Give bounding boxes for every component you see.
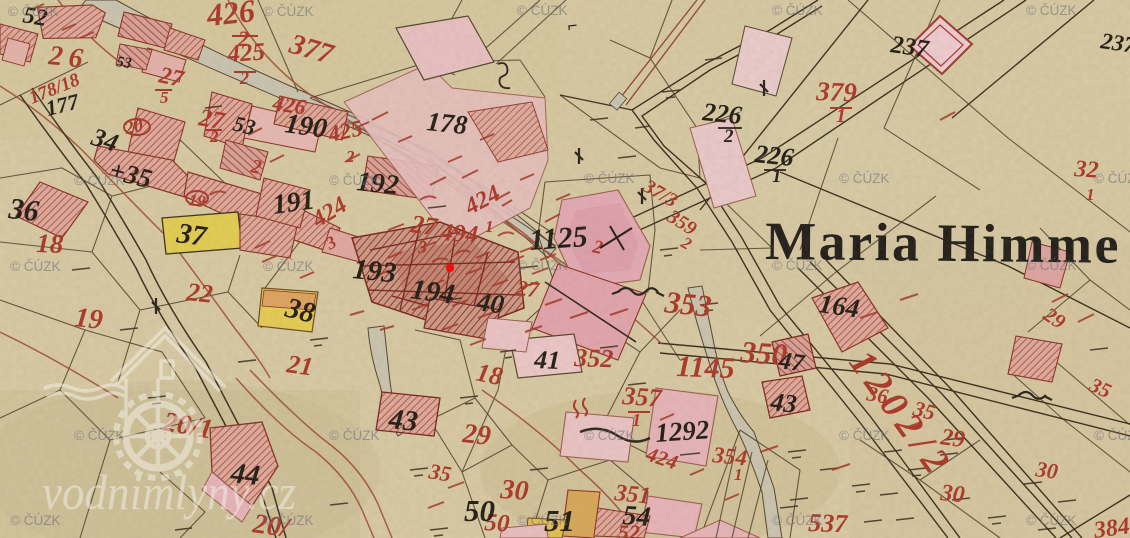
svg-text:© ČÚZK: © ČÚZK xyxy=(839,171,889,186)
svg-text:© ČÚZK: © ČÚZK xyxy=(1026,258,1076,273)
svg-text:© ČÚZK: © ČÚZK xyxy=(584,171,634,186)
svg-text:© ČÚZK: © ČÚZK xyxy=(772,513,822,528)
svg-text:© ČÚZK: © ČÚZK xyxy=(263,4,313,19)
svg-text:© ČÚZK: © ČÚZK xyxy=(517,3,567,18)
svg-text:© ČÚZK: © ČÚZK xyxy=(1094,428,1130,443)
svg-text:© ČÚZK: © ČÚZK xyxy=(329,173,379,188)
svg-text:© ČÚZK: © ČÚZK xyxy=(584,428,634,443)
svg-text:© ČÚZK: © ČÚZK xyxy=(263,259,313,274)
svg-text:© ČÚZK: © ČÚZK xyxy=(517,258,567,273)
svg-text:© ČÚZK: © ČÚZK xyxy=(839,428,889,443)
svg-text:© ČÚZK: © ČÚZK xyxy=(772,258,822,273)
svg-text:© ČÚZK: © ČÚZK xyxy=(1094,171,1130,186)
svg-text:© ČÚZK: © ČÚZK xyxy=(74,173,124,188)
svg-text:© ČÚZK: © ČÚZK xyxy=(517,513,567,528)
svg-text:© ČÚZK: © ČÚZK xyxy=(329,428,379,443)
svg-text:© ČÚZK: © ČÚZK xyxy=(1026,3,1076,18)
svg-text:© ČÚZK: © ČÚZK xyxy=(8,4,58,19)
svg-text:© ČÚZK: © ČÚZK xyxy=(10,259,60,274)
svg-text:vodnimlyny.cz: vodnimlyny.cz xyxy=(42,464,296,520)
svg-text:© ČÚZK: © ČÚZK xyxy=(772,3,822,18)
svg-text:© ČÚZK: © ČÚZK xyxy=(1026,513,1076,528)
